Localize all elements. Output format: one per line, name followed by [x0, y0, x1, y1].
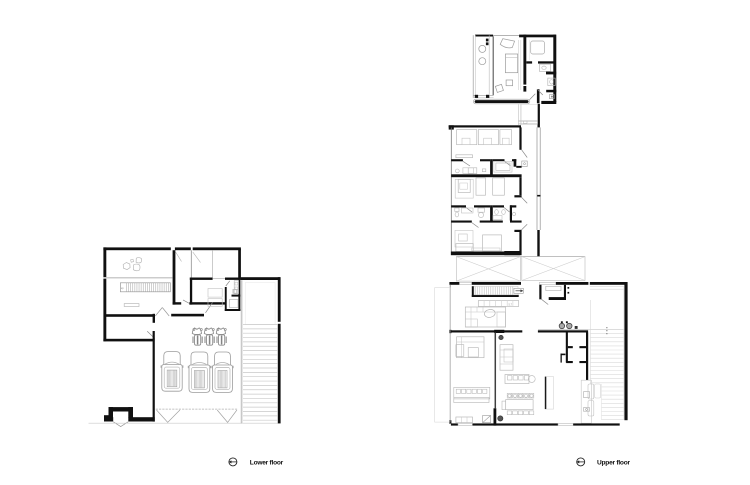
- svg-text:Upper floor: Upper floor: [597, 459, 630, 466]
- svg-text:Lower floor: Lower floor: [250, 459, 284, 466]
- svg-text:up: up: [121, 287, 124, 290]
- svg-text:5,7: 5,7: [509, 303, 513, 307]
